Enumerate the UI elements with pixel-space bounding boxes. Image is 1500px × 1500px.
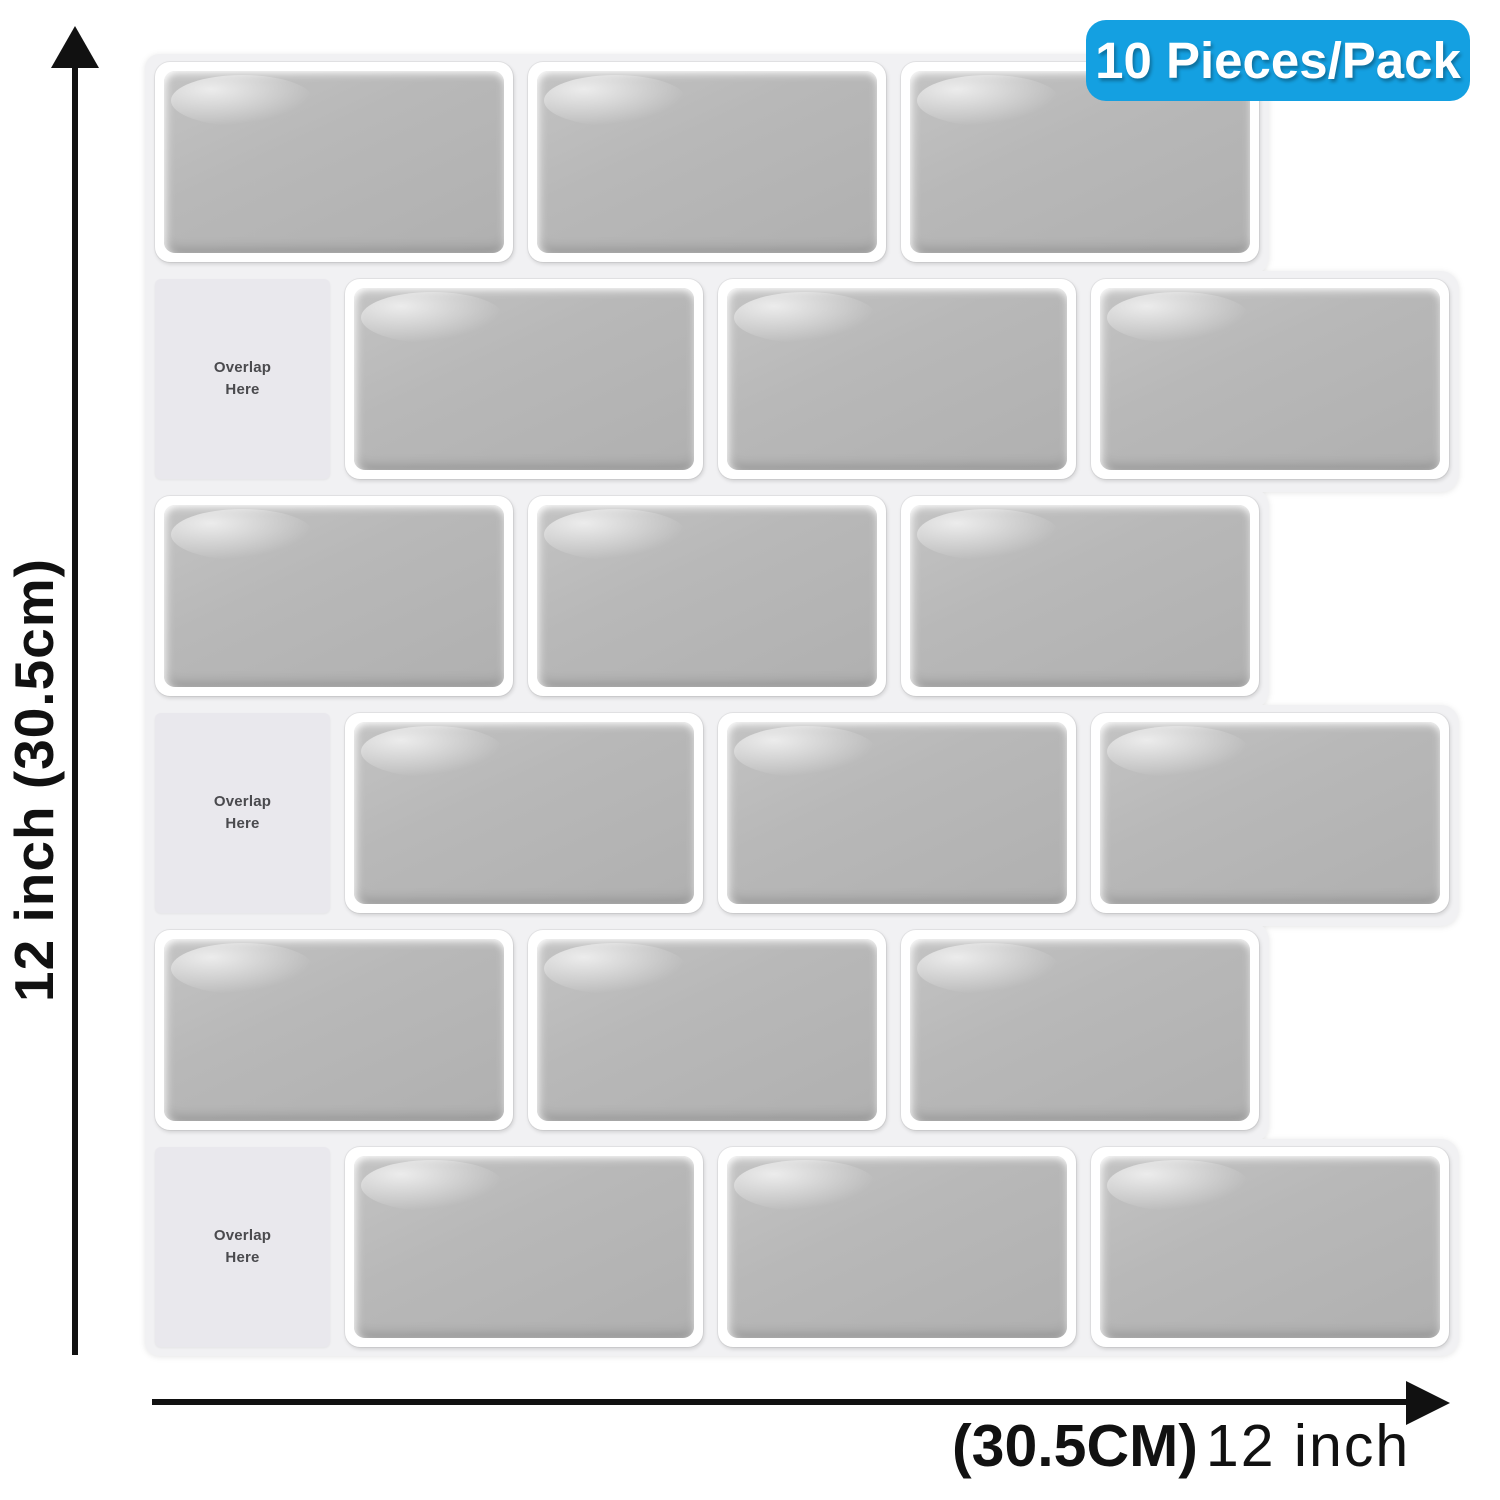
tile-surface [537,939,877,1121]
tile-surface [1100,288,1440,470]
subway-tile [528,496,886,696]
overlap-label: Overlap Here [201,1225,285,1269]
tile-row: Overlap Here [145,271,1459,492]
subway-tile [718,713,1076,913]
subway-tile [155,496,513,696]
tile-surface [354,288,694,470]
tile-surface [164,939,504,1121]
horizontal-dimension-line [152,1399,1408,1405]
right-arrow-icon [1406,1381,1450,1425]
subway-tile [718,279,1076,479]
subway-tile [718,1147,1076,1347]
imperial-label: 12 inch [1206,1413,1410,1479]
subway-tile [155,930,513,1130]
subway-tile [1091,1147,1449,1347]
overlap-tile: Overlap Here [155,1147,330,1347]
subway-tile [901,496,1259,696]
tile-surface [537,505,877,687]
tile-sheet: Overlap HereOverlap HereOverlap Here [145,54,1465,1364]
pieces-per-pack-badge: 10 Pieces/Pack [1086,20,1470,101]
tile-surface [164,505,504,687]
subway-tile [528,930,886,1130]
overlap-label: Overlap Here [201,357,285,401]
vertical-dimension-label: 12 inch (30.5cm) [2,558,66,1002]
subway-tile [155,62,513,262]
tile-surface [164,71,504,253]
tile-surface [727,288,1067,470]
overlap-label: Overlap Here [201,791,285,835]
tile-surface [354,722,694,904]
tile-surface [537,71,877,253]
tile-surface [910,939,1250,1121]
badge-label: 10 Pieces/Pack [1095,31,1461,90]
tile-surface [910,505,1250,687]
tile-row: Overlap Here [145,705,1459,926]
tile-surface [1100,1156,1440,1338]
subway-tile [345,279,703,479]
product-image: 12 inch (30.5cm) Overlap HereOverlap Her… [0,0,1500,1500]
subway-tile [345,713,703,913]
tile-surface [354,1156,694,1338]
horizontal-dimension-label: (30.5CM)12 inch [952,1412,1410,1480]
subway-tile [345,1147,703,1347]
tile-surface [727,722,1067,904]
overlap-tile: Overlap Here [155,279,330,479]
metric-label: (30.5CM) [952,1413,1198,1479]
tile-row [145,922,1269,1143]
subway-tile [528,62,886,262]
tile-row: Overlap Here [145,1139,1459,1356]
subway-tile [1091,279,1449,479]
tile-surface [727,1156,1067,1338]
subway-tile [1091,713,1449,913]
tile-row [145,488,1269,709]
vertical-dimension-line [72,58,78,1355]
tile-surface [1100,722,1440,904]
subway-tile [901,930,1259,1130]
overlap-tile: Overlap Here [155,713,330,913]
